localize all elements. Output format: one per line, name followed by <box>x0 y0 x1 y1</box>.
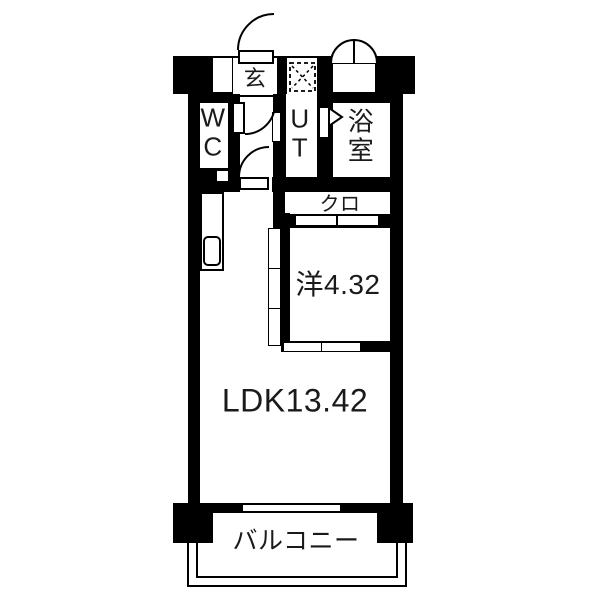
western-sliding-panel-2 <box>322 343 360 351</box>
wc-door-arc <box>245 104 275 134</box>
entrance-door-arc <box>238 14 274 50</box>
western-room-left-wall <box>281 213 290 352</box>
balcony-label: バルコニー <box>232 521 359 557</box>
bath-door-opening <box>319 107 329 138</box>
ldk-door-leaf <box>239 177 269 190</box>
right-outer-wall <box>390 94 403 503</box>
wc-label: W C <box>200 103 225 160</box>
closet-sliding-panel-2 <box>338 216 378 225</box>
left-outer-wall <box>188 94 200 505</box>
kitchen-sink <box>203 236 221 266</box>
bath-top-wall <box>333 94 403 103</box>
closet-label: クロ <box>320 188 361 217</box>
ldk-label: LDK13.42 <box>222 383 368 420</box>
closet-sliding-panel-1 <box>296 216 336 225</box>
wall-notch <box>217 171 228 181</box>
sliding-door-divider <box>269 268 280 269</box>
entry-recess <box>213 58 232 92</box>
ut-upper-floor <box>287 58 317 94</box>
western-room-sliding-door-strip <box>268 228 281 346</box>
left-pier <box>173 503 213 543</box>
western-sliding-panel-1 <box>284 343 321 351</box>
western-room-label: 洋4.32 <box>296 263 381 303</box>
genkan-label: 玄 <box>244 61 267 93</box>
sliding-door-divider <box>269 308 280 309</box>
right-pier <box>377 503 413 543</box>
balcony-window-slot <box>243 505 340 511</box>
ut-door-opening <box>272 112 281 142</box>
bath-label: 浴 室 <box>348 107 375 164</box>
floor-plan: 玄 W C U T 浴 室 クロ 洋4.32 LDK13.42 バルコニー <box>0 0 600 600</box>
wc-door-leaf <box>232 102 245 134</box>
ldk-door-arc <box>239 147 269 177</box>
wc-bottom-wall <box>188 168 240 192</box>
meter-box <box>331 62 377 94</box>
ut-label: U T <box>290 104 309 161</box>
